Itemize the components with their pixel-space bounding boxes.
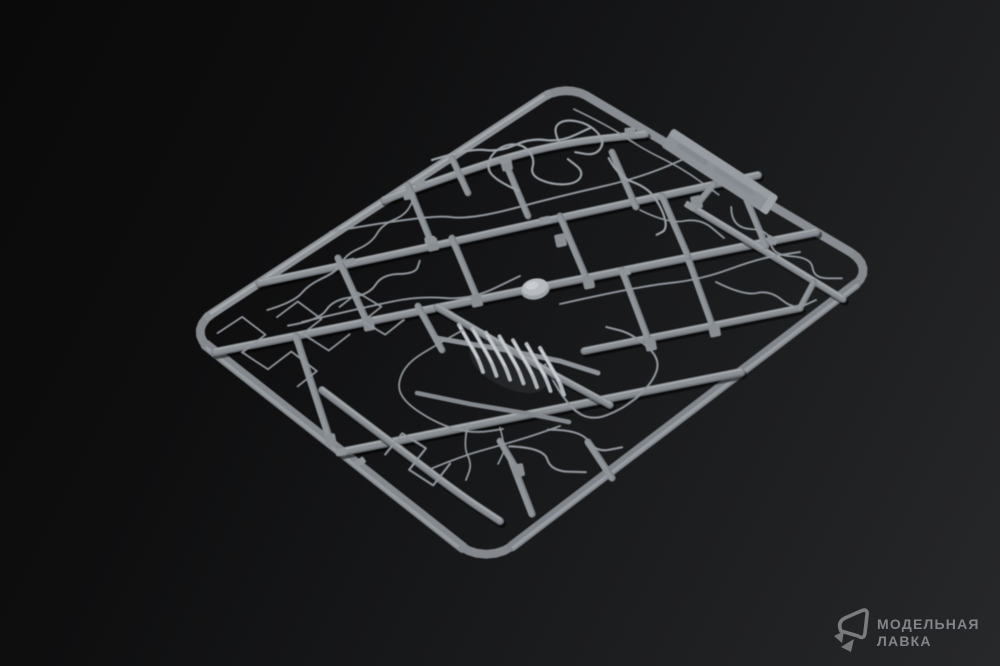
svg-text:МОДЕЛЬНАЯ: МОДЕЛЬНАЯ: [877, 616, 980, 632]
svg-text:ЛАВКА: ЛАВКА: [877, 633, 932, 649]
